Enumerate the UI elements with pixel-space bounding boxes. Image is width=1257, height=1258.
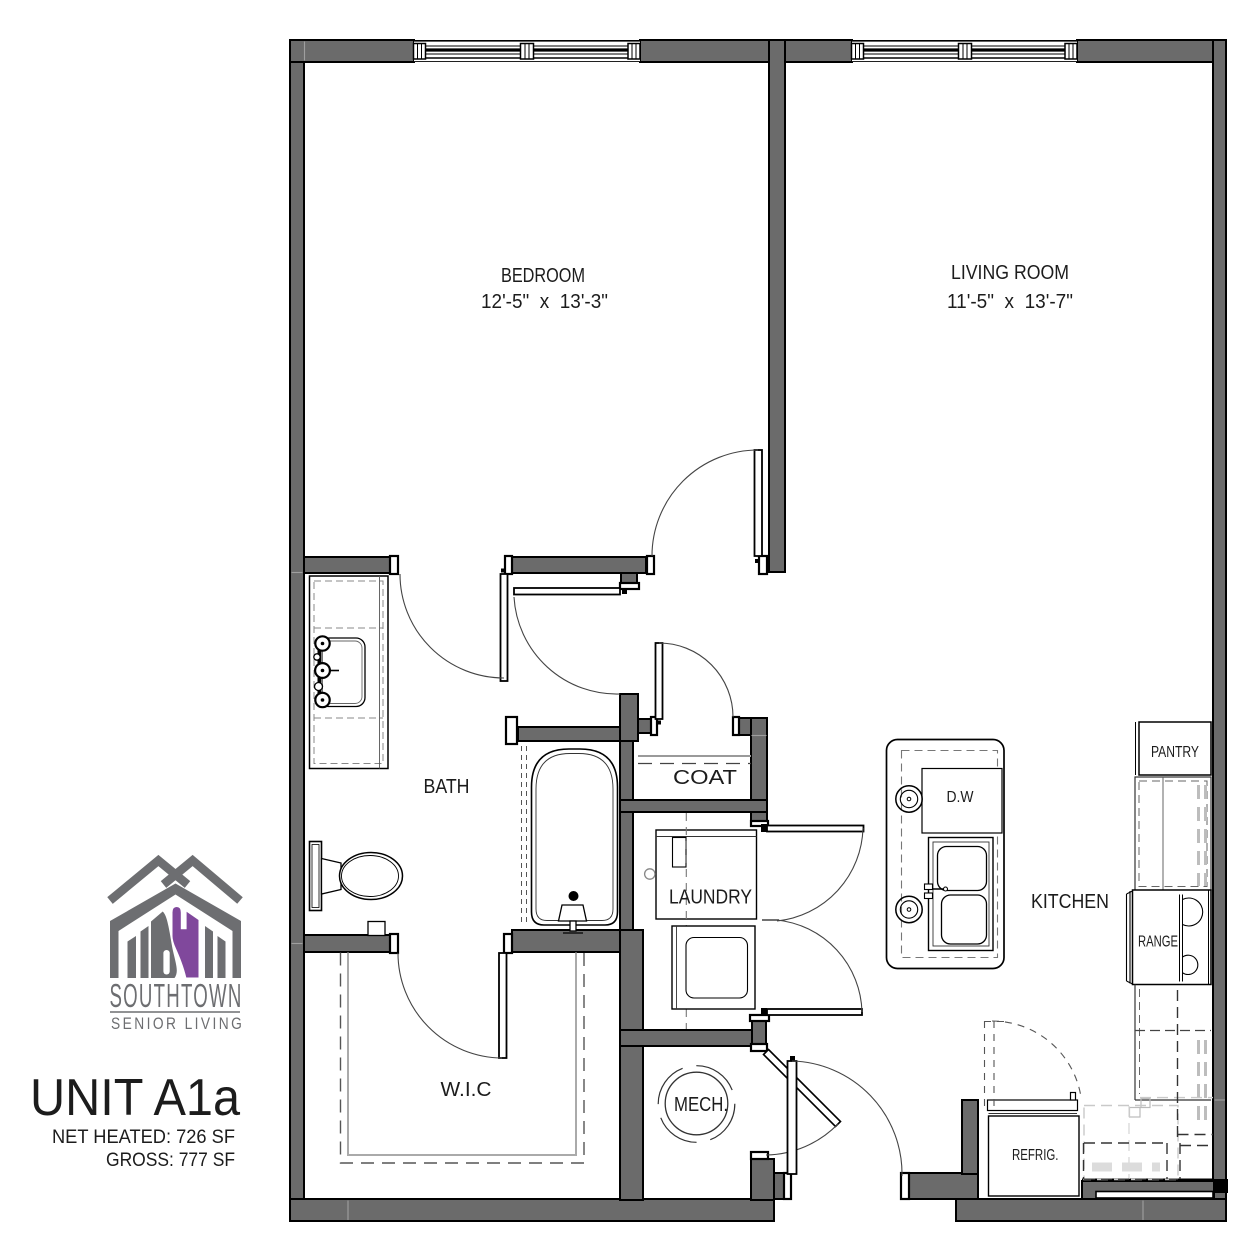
svg-text:D.W: D.W — [947, 789, 974, 806]
svg-text:BEDROOM: BEDROOM — [501, 265, 585, 287]
svg-text:LIVING ROOM: LIVING ROOM — [951, 262, 1069, 284]
svg-text:COAT: COAT — [673, 767, 737, 789]
svg-text:SOUTHTOWN: SOUTHTOWN — [110, 977, 243, 1014]
svg-text:KITCHEN: KITCHEN — [1031, 891, 1109, 913]
svg-text:BATH: BATH — [424, 776, 470, 798]
svg-text:MECH.: MECH. — [674, 1094, 728, 1116]
svg-text:12'-5" x 13'-3": 12'-5" x 13'-3" — [481, 291, 608, 313]
svg-text:NET HEATED: 726 SF: NET HEATED: 726 SF — [52, 1126, 235, 1148]
svg-text:11'-5" x 13'-7": 11'-5" x 13'-7" — [947, 291, 1073, 313]
svg-text:PANTRY: PANTRY — [1151, 744, 1199, 761]
svg-text:RANGE: RANGE — [1138, 934, 1178, 951]
svg-text:SENIOR LIVING: SENIOR LIVING — [111, 1015, 244, 1034]
svg-text:GROSS: 777 SF: GROSS: 777 SF — [106, 1149, 235, 1171]
svg-text:W.I.C: W.I.C — [441, 1079, 492, 1101]
svg-text:UNIT A1a: UNIT A1a — [30, 1069, 240, 1127]
svg-text:REFRIG.: REFRIG. — [1012, 1147, 1059, 1164]
svg-text:LAUNDRY: LAUNDRY — [669, 887, 752, 909]
